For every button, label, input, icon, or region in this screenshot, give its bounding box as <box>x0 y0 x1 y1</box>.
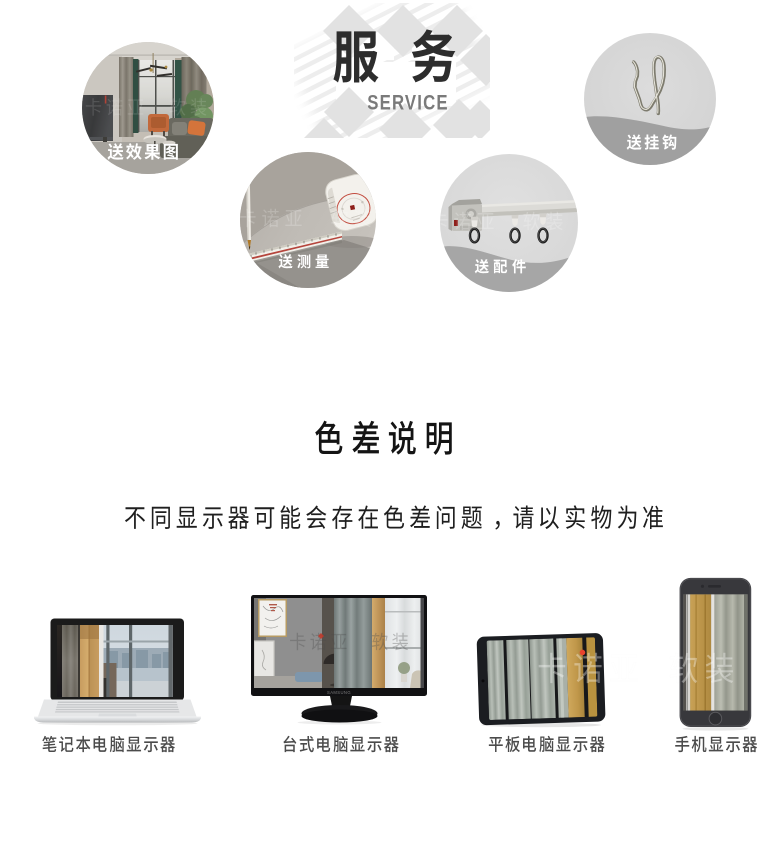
svg-text:SAMSUNG: SAMSUNG <box>327 690 351 695</box>
svg-text:SERVICE: SERVICE <box>367 91 448 114</box>
